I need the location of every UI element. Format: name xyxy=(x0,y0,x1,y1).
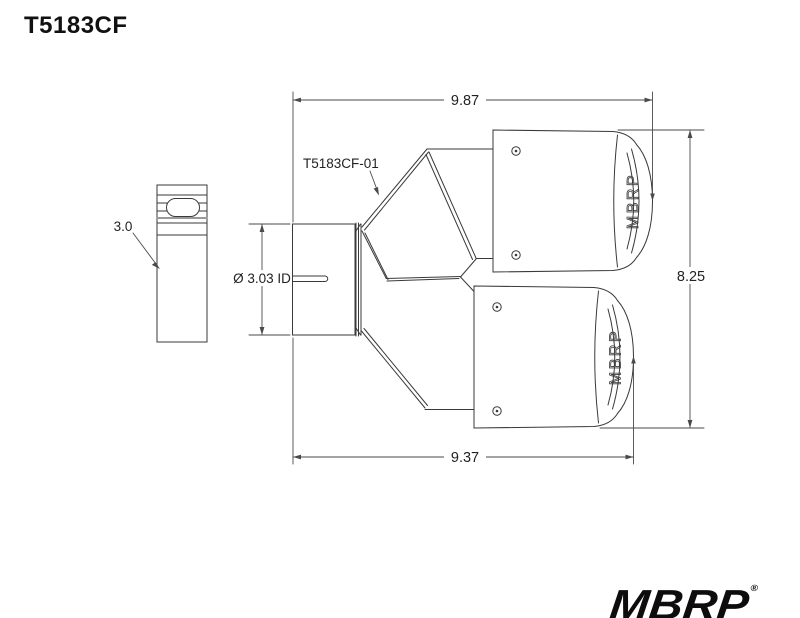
inlet-body xyxy=(293,224,356,335)
arrow-down xyxy=(688,420,693,428)
mbrp-logo-text: MBRP xyxy=(607,581,751,618)
mbrp-logo: MBRP® xyxy=(609,568,800,612)
arrow-up xyxy=(688,130,693,138)
inlet-side-view xyxy=(157,185,207,342)
dim-text-inlet-diameter: Ø 3.03 ID xyxy=(233,271,291,286)
arrow-right xyxy=(626,455,634,460)
dimension-inlet-diameter: Ø 3.03 ID xyxy=(233,224,291,335)
arrow-left xyxy=(293,455,301,460)
mid-diagonal-inner xyxy=(365,233,388,280)
mid-web-edge-inner xyxy=(387,279,459,282)
leader-arrow xyxy=(152,262,160,269)
upper-tip-brand-text: MBRP xyxy=(625,173,642,229)
mid-web-edge xyxy=(386,277,461,279)
dim-text-bottom-width: 9.37 xyxy=(451,450,479,466)
leader-line xyxy=(133,233,158,266)
arrow-left xyxy=(293,98,301,103)
lower-arm-left-edge xyxy=(362,331,426,408)
arrow-right xyxy=(645,98,653,103)
dim-text-top-width: 9.87 xyxy=(451,93,479,109)
mid-diagonal xyxy=(362,231,386,278)
part-label-text: T5183CF-01 xyxy=(303,156,379,171)
exhaust-tip-drawing: MBRP MBRP 9.87 9.37 xyxy=(0,0,800,618)
crotch-left xyxy=(461,259,477,277)
inlet-pipe xyxy=(293,223,362,336)
crotch-right xyxy=(461,277,475,292)
upper-arm-right-edge-inner xyxy=(426,155,473,260)
inlet-length-text: 3.0 xyxy=(114,219,133,234)
side-view-slot xyxy=(167,199,200,217)
technical-drawing-page: T5183CF xyxy=(0,0,800,618)
registered-trademark-mark: ® xyxy=(750,583,759,593)
label-inlet-length: 3.0 xyxy=(114,219,160,269)
arrow-down xyxy=(260,327,265,335)
y-pipe-body xyxy=(362,149,494,410)
dim-text-height: 8.25 xyxy=(677,269,705,285)
lower-arm-left-edge-inner xyxy=(364,329,428,406)
leader-arrow xyxy=(374,187,379,196)
inlet-slot xyxy=(293,276,328,282)
weld-band xyxy=(356,223,361,336)
upper-arm-right-edge xyxy=(429,152,476,258)
arrow-up xyxy=(260,224,265,232)
lower-tip-brand-text: MBRP xyxy=(608,329,625,385)
label-part-number: T5183CF-01 xyxy=(303,156,379,196)
